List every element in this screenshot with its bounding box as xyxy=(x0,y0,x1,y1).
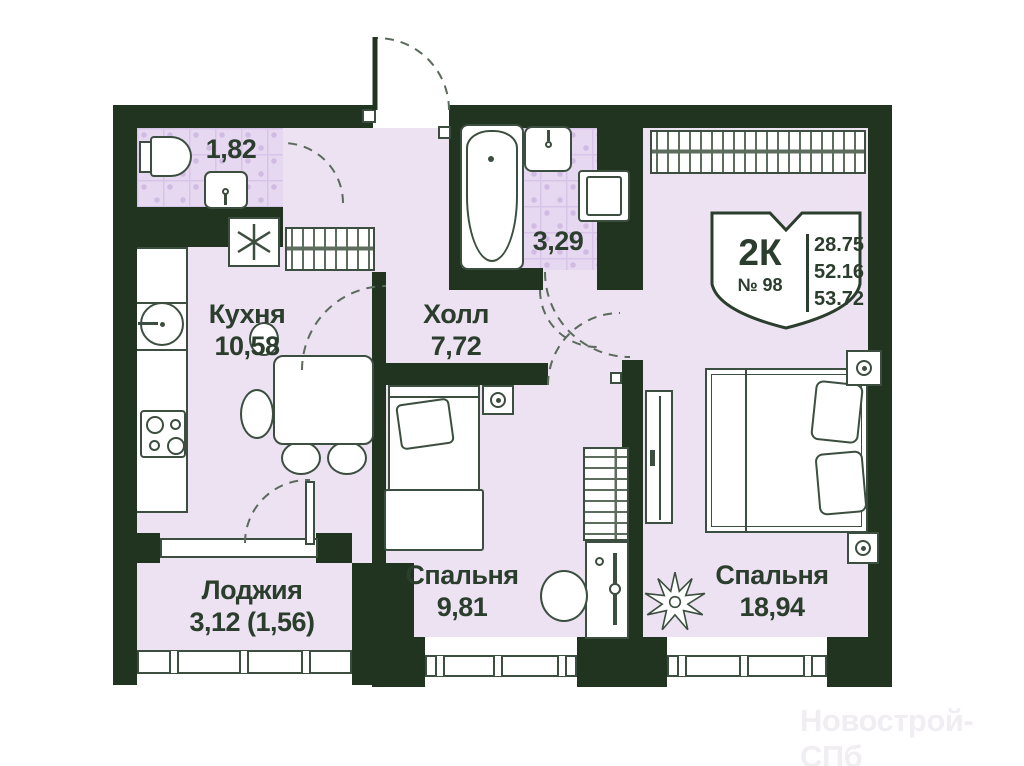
washing-machine xyxy=(578,170,630,222)
loggia-door-leaf xyxy=(305,481,315,545)
wall-loggia-partition-left xyxy=(113,533,160,563)
badge-divider xyxy=(806,234,809,312)
watermark: Новострой-СПб xyxy=(800,703,1024,766)
room-label-bathroom-small: 1,82 xyxy=(206,134,257,166)
socket xyxy=(846,350,882,386)
socket xyxy=(482,385,514,415)
area-living: 28.75 xyxy=(814,232,864,259)
loggia-sill xyxy=(160,538,318,558)
window-bedroom-small xyxy=(425,655,577,677)
closet-hangers xyxy=(583,447,629,541)
door-stop xyxy=(438,126,451,139)
socket xyxy=(847,532,879,564)
unit-type: 2К xyxy=(716,234,804,273)
desk-chair xyxy=(540,570,588,622)
window-bedroom-large xyxy=(667,655,827,677)
sink-bath xyxy=(524,126,572,172)
toilet-bowl xyxy=(150,136,192,177)
room-label-kitchen: Кухня10,58 xyxy=(209,299,285,363)
room-label-hall: Холл7,72 xyxy=(423,299,489,363)
room-label-loggia: Лоджия3,12 (1,56) xyxy=(189,575,314,639)
wall-top-left xyxy=(113,105,373,128)
window-loggia xyxy=(137,650,352,674)
stool xyxy=(281,441,321,475)
bathtub xyxy=(460,124,524,270)
room-label-bedroom-small: Спальня9,81 xyxy=(405,560,518,624)
unit-info-badge: 2К № 98 28.75 52.16 53.72 xyxy=(706,210,866,332)
bed-double xyxy=(705,368,868,533)
wall-left xyxy=(113,105,137,685)
door-stop xyxy=(610,372,622,384)
radiator-hall xyxy=(285,227,375,271)
area-main: 52.16 xyxy=(814,259,864,286)
room-label-bathroom: 3,29 xyxy=(533,226,584,258)
pillar-bottom-center xyxy=(577,637,667,687)
wardrobe xyxy=(645,390,673,524)
chair xyxy=(240,389,274,439)
stove xyxy=(140,410,186,458)
wall-loggia-partition-right xyxy=(316,533,352,563)
door-stop xyxy=(362,109,376,123)
vent-shaft xyxy=(228,217,280,267)
kitchen-sink xyxy=(140,302,184,346)
wall-bedroom-small-top xyxy=(386,363,548,385)
room-label-bedroom-large: Спальня18,94 xyxy=(715,560,828,624)
sink-bath-small xyxy=(204,171,248,209)
area-total: 53.72 xyxy=(814,286,864,313)
vent-icon xyxy=(230,219,278,265)
bed-single-blanket xyxy=(384,489,484,551)
wardrobe-open xyxy=(650,130,866,174)
unit-number: № 98 xyxy=(716,275,804,296)
desk xyxy=(585,541,629,639)
floor-plan: 1,82 Кухня10,58 Холл7,72 3,29 Спальня9,8… xyxy=(0,0,1024,766)
stool xyxy=(327,441,367,475)
kitchen-table xyxy=(273,355,374,445)
pillar-bottom-right xyxy=(827,637,892,687)
kitchen-counter xyxy=(137,247,188,513)
pillar-bottom-left xyxy=(372,637,425,687)
wall-bath-bottom xyxy=(449,268,543,290)
